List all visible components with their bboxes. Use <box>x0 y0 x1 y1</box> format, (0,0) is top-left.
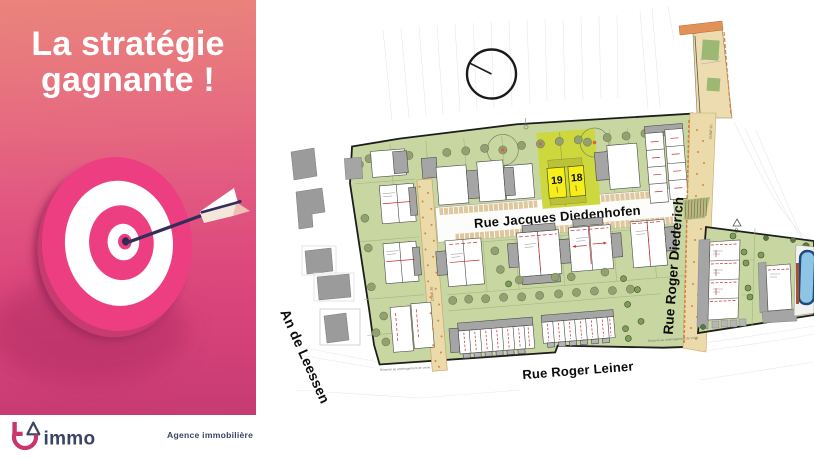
svg-text:Réservé au aménagement de voir: Réservé au aménagement de voirie <box>380 365 431 372</box>
svg-text:18: 18 <box>570 172 583 185</box>
svg-text:Rue Roger Leiner: Rue Roger Leiner <box>522 358 634 382</box>
svg-text:ZONE 30: ZONE 30 <box>709 125 714 140</box>
svg-text:immo: immo <box>44 428 96 449</box>
svg-text:19: 19 <box>551 174 564 187</box>
